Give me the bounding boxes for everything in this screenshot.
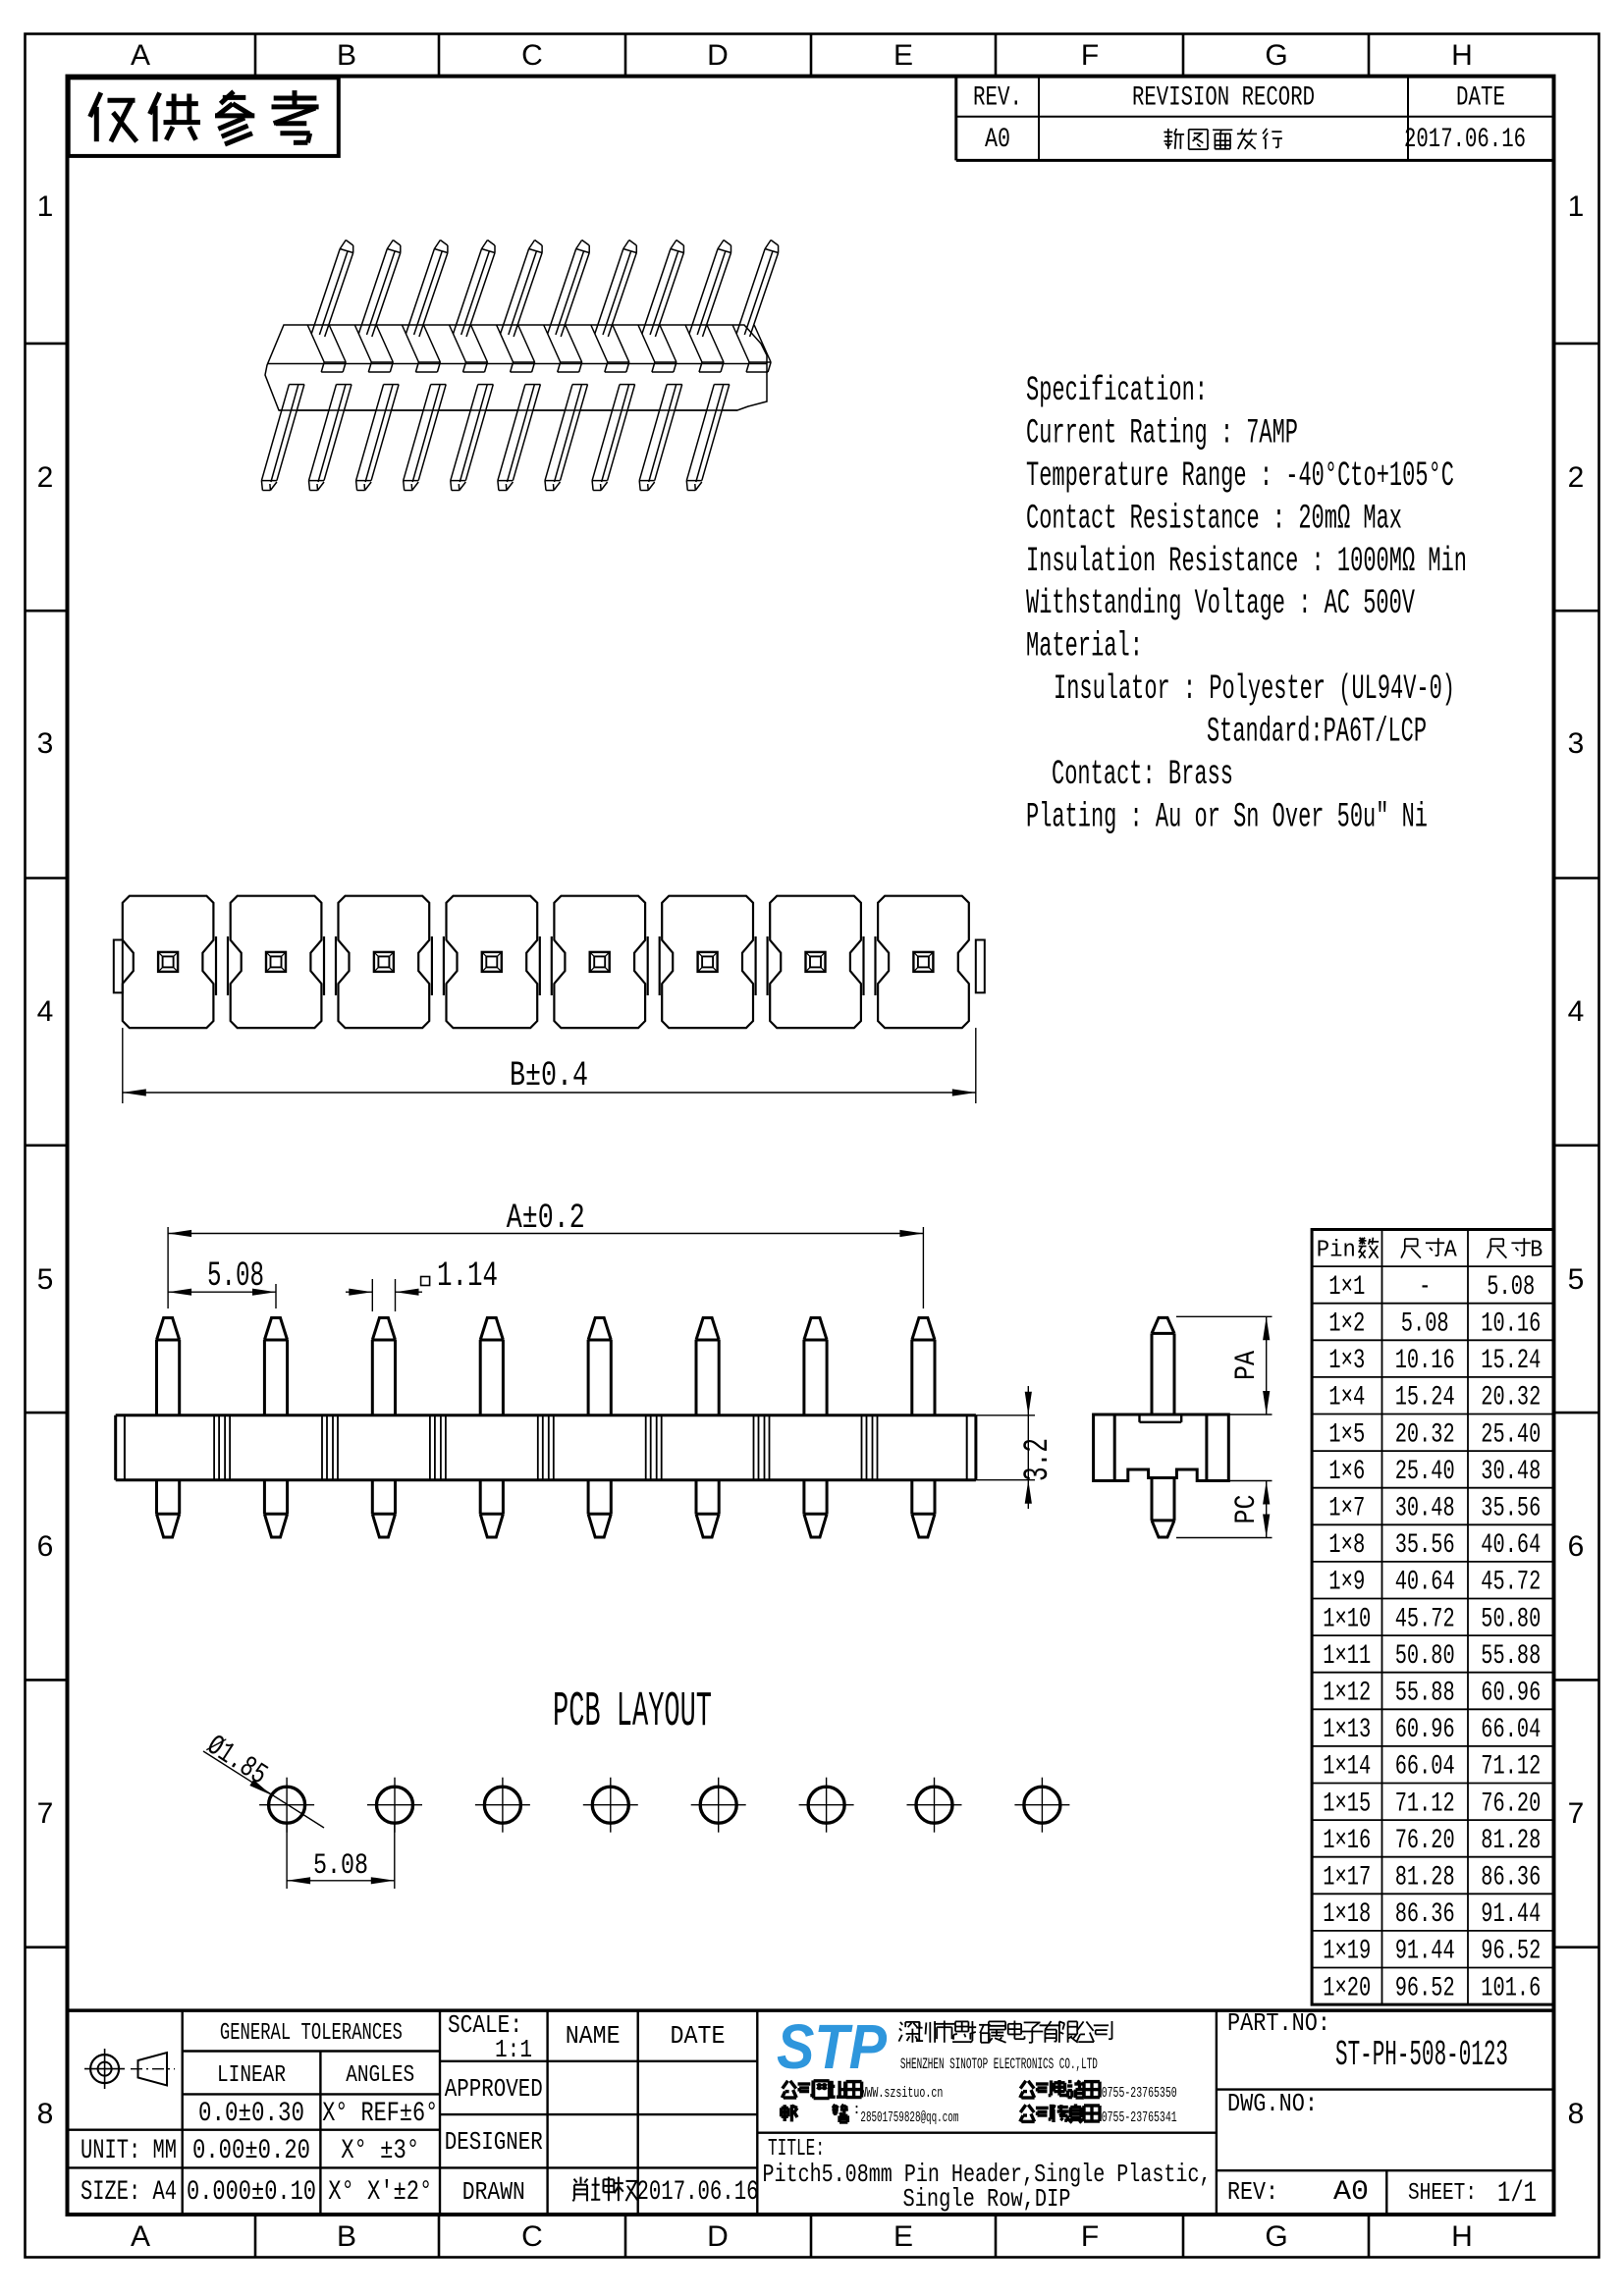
svg-text:10.16: 10.16 (1481, 1309, 1541, 1340)
svg-text:5.08: 5.08 (313, 1849, 368, 1883)
svg-text:PC: PC (1230, 1495, 1264, 1524)
svg-text:1×1: 1×1 (1328, 1272, 1365, 1303)
svg-text:55.88: 55.88 (1395, 1679, 1455, 1709)
svg-text:0.0±0.30: 0.0±0.30 (198, 2099, 304, 2129)
svg-text:1×17: 1×17 (1323, 1863, 1371, 1894)
svg-text:1×12: 1×12 (1323, 1679, 1371, 1709)
svg-text:1×19: 1×19 (1323, 1937, 1371, 1967)
svg-text:F: F (1081, 2220, 1099, 2253)
svg-text:B: B (337, 39, 356, 72)
svg-text:0755-23765350: 0755-23765350 (1102, 2085, 1177, 2102)
svg-text:35.56: 35.56 (1395, 1530, 1455, 1561)
svg-text:A0: A0 (1333, 2177, 1369, 2208)
svg-text:1:1: 1:1 (495, 2035, 532, 2064)
svg-text:50.80: 50.80 (1395, 1641, 1455, 1672)
svg-text:5.08: 5.08 (1487, 1272, 1535, 1303)
svg-text:X° REF±6°: X° REF±6° (322, 2099, 438, 2129)
svg-text:LINEAR: LINEAR (217, 2062, 286, 2089)
svg-text:76.20: 76.20 (1481, 1789, 1541, 1819)
svg-text:Plating : Au or Sn Over 50u" N: Plating : Au or Sn Over 50u" Ni (1026, 798, 1428, 837)
svg-text:4: 4 (1568, 995, 1585, 1028)
svg-text:60.96: 60.96 (1481, 1679, 1541, 1709)
svg-text:1/1: 1/1 (1497, 2177, 1537, 2211)
svg-text:86.36: 86.36 (1481, 1863, 1541, 1894)
svg-text:Current Rating : 7AMP: Current Rating : 7AMP (1026, 413, 1298, 453)
svg-text:30.48: 30.48 (1395, 1494, 1455, 1524)
svg-text:8: 8 (37, 2098, 54, 2130)
svg-text:A: A (131, 39, 150, 72)
svg-text:B: B (1530, 1237, 1543, 1263)
svg-text:ANGLES: ANGLES (346, 2062, 414, 2089)
svg-text:UNIT: MM: UNIT: MM (81, 2136, 177, 2166)
svg-text:0.000±0.10: 0.000±0.10 (187, 2177, 316, 2208)
svg-text:X° ±3°: X° ±3° (341, 2136, 419, 2166)
svg-text:6: 6 (37, 1530, 54, 1563)
svg-text:ST-PH-508-0123: ST-PH-508-0123 (1335, 2035, 1508, 2075)
svg-text:D: D (707, 2220, 729, 2253)
svg-text:1×8: 1×8 (1328, 1530, 1365, 1561)
svg-text:28501759828@qq.com: 28501759828@qq.com (860, 2109, 958, 2126)
svg-text:-: - (1419, 1272, 1431, 1303)
svg-text:45.72: 45.72 (1395, 1604, 1455, 1634)
svg-text:REV:: REV: (1227, 2177, 1278, 2207)
svg-text:1.14: 1.14 (437, 1256, 498, 1296)
svg-text:81.28: 81.28 (1395, 1863, 1455, 1894)
svg-text:REV.: REV. (973, 83, 1022, 114)
svg-text:2017.06.16: 2017.06.16 (637, 2177, 759, 2208)
svg-text:Contact Resistance : 20mΩ Max: Contact Resistance : 20mΩ Max (1026, 499, 1402, 538)
svg-text:1×15: 1×15 (1323, 1789, 1371, 1819)
svg-text:PART.NO:: PART.NO: (1227, 2008, 1330, 2038)
svg-text:1×4: 1×4 (1328, 1383, 1365, 1414)
svg-text:1: 1 (37, 190, 54, 223)
svg-text:86.36: 86.36 (1395, 1899, 1455, 1930)
svg-text:10.16: 10.16 (1395, 1346, 1455, 1376)
svg-text:81.28: 81.28 (1481, 1826, 1541, 1856)
svg-text:Contact: Brass: Contact: Brass (1052, 755, 1233, 794)
svg-text:2: 2 (1568, 461, 1585, 494)
svg-text:C: C (521, 2220, 543, 2253)
svg-text:Insulation Resistance : 1000MΩ: Insulation Resistance : 1000MΩ Min (1026, 542, 1467, 581)
svg-text:Specification:: Specification: (1026, 371, 1208, 410)
svg-text:1×10: 1×10 (1323, 1604, 1371, 1634)
svg-text:B: B (337, 2220, 356, 2253)
svg-text:1×7: 1×7 (1328, 1494, 1365, 1524)
svg-text:2017.06.16: 2017.06.16 (1404, 125, 1526, 155)
svg-text:REVISION RECORD: REVISION RECORD (1132, 83, 1315, 114)
svg-text:101.6: 101.6 (1481, 1973, 1541, 2003)
svg-text:APPROVED: APPROVED (445, 2074, 543, 2104)
svg-text:0755-23765341: 0755-23765341 (1102, 2109, 1177, 2126)
svg-text:Pin: Pin (1317, 1237, 1356, 1263)
svg-text:TITLE:: TITLE: (768, 2136, 825, 2163)
svg-text:15.24: 15.24 (1395, 1383, 1455, 1414)
svg-text:A: A (131, 2220, 150, 2253)
svg-text:Single Row,DIP: Single Row,DIP (903, 2184, 1071, 2214)
svg-text:X° X'±2°: X° X'±2° (328, 2177, 432, 2208)
svg-text:1×18: 1×18 (1323, 1899, 1371, 1930)
svg-text:20.32: 20.32 (1395, 1419, 1455, 1450)
svg-text:5: 5 (37, 1263, 54, 1296)
svg-text:A±0.2: A±0.2 (507, 1199, 585, 1238)
svg-text:40.64: 40.64 (1395, 1568, 1455, 1598)
svg-text:50.80: 50.80 (1481, 1604, 1541, 1634)
svg-text:1×16: 1×16 (1323, 1826, 1371, 1856)
svg-text:1×11: 1×11 (1323, 1641, 1371, 1672)
svg-text:55.88: 55.88 (1481, 1641, 1541, 1672)
svg-text:7: 7 (37, 1797, 54, 1830)
svg-text:1×14: 1×14 (1323, 1752, 1371, 1783)
svg-text:40.64: 40.64 (1481, 1530, 1541, 1561)
svg-text:91.44: 91.44 (1395, 1937, 1455, 1967)
svg-text:H: H (1451, 2220, 1473, 2253)
svg-text:3: 3 (1568, 727, 1585, 760)
svg-text:D: D (707, 39, 729, 72)
svg-text:96.52: 96.52 (1481, 1937, 1541, 1967)
svg-text:G: G (1265, 2220, 1287, 2253)
svg-text:C: C (521, 39, 543, 72)
svg-text:6: 6 (1568, 1530, 1585, 1563)
svg-text:1×20: 1×20 (1323, 1973, 1371, 2003)
svg-text:66.04: 66.04 (1481, 1715, 1541, 1745)
svg-text:B±0.4: B±0.4 (510, 1056, 588, 1095)
svg-text:7: 7 (1568, 1797, 1585, 1830)
svg-text:1×3: 1×3 (1328, 1346, 1365, 1376)
svg-text:Material:: Material: (1026, 627, 1143, 667)
svg-text:STP: STP (777, 2011, 887, 2082)
svg-text:E: E (893, 2220, 913, 2253)
svg-text:4: 4 (37, 995, 54, 1028)
svg-text:G: G (1265, 39, 1287, 72)
svg-text:91.44: 91.44 (1481, 1899, 1541, 1930)
svg-text:DATE: DATE (671, 2021, 726, 2051)
svg-text:E: E (893, 39, 913, 72)
svg-text:NAME: NAME (566, 2021, 621, 2051)
svg-text:Insulator : Polyester (UL94V-0: Insulator : Polyester (UL94V-0) (1054, 669, 1455, 709)
svg-text:5.08: 5.08 (207, 1256, 264, 1296)
svg-text:H: H (1451, 39, 1473, 72)
svg-text:1: 1 (1568, 190, 1585, 223)
svg-text:DESIGNER: DESIGNER (445, 2127, 543, 2157)
svg-text:5.08: 5.08 (1401, 1309, 1449, 1340)
svg-text:Standard:PA6T/LCP: Standard:PA6T/LCP (1207, 713, 1427, 752)
svg-text:Temperature Range : -40°Cto+10: Temperature Range : -40°Cto+105°C (1026, 456, 1454, 496)
svg-text:A: A (1444, 1237, 1458, 1263)
svg-text:45.72: 45.72 (1481, 1568, 1541, 1598)
svg-text:25.40: 25.40 (1395, 1457, 1455, 1487)
svg-text:2: 2 (37, 461, 54, 494)
svg-text:66.04: 66.04 (1395, 1752, 1455, 1783)
svg-text:76.20: 76.20 (1395, 1826, 1455, 1856)
svg-text:DRAWN: DRAWN (462, 2177, 525, 2207)
svg-text:SIZE: A4: SIZE: A4 (81, 2177, 177, 2208)
svg-text:1×6: 1×6 (1328, 1457, 1365, 1487)
svg-text:WWW.szsituo.cn: WWW.szsituo.cn (860, 2085, 943, 2102)
svg-text:Withstanding Voltage : AC 500V: Withstanding Voltage : AC 500V (1026, 584, 1415, 623)
svg-text:71.12: 71.12 (1395, 1789, 1455, 1819)
svg-text:3: 3 (37, 727, 54, 760)
svg-text:DATE: DATE (1456, 83, 1505, 114)
svg-text:1×5: 1×5 (1328, 1419, 1365, 1450)
svg-text:SHEET:: SHEET: (1408, 2180, 1477, 2207)
svg-text:SHENZHEN SINOTOP ELECTRONICS C: SHENZHEN SINOTOP ELECTRONICS CO.,LTD (900, 2056, 1098, 2073)
svg-text:5: 5 (1568, 1263, 1585, 1296)
svg-text:8: 8 (1568, 2098, 1585, 2130)
svg-text:1×9: 1×9 (1328, 1568, 1365, 1598)
svg-text:1×13: 1×13 (1323, 1715, 1371, 1745)
svg-text:60.96: 60.96 (1395, 1715, 1455, 1745)
svg-text:F: F (1081, 39, 1099, 72)
svg-text:71.12: 71.12 (1481, 1752, 1541, 1783)
svg-text:25.40: 25.40 (1481, 1419, 1541, 1450)
svg-text:DWG.NO:: DWG.NO: (1227, 2089, 1318, 2118)
svg-text:1×2: 1×2 (1328, 1309, 1365, 1340)
svg-text:0.00±0.20: 0.00±0.20 (192, 2136, 310, 2166)
svg-text:96.52: 96.52 (1395, 1973, 1455, 2003)
svg-text:15.24: 15.24 (1481, 1346, 1541, 1376)
svg-text:PCB LAYOUT: PCB LAYOUT (553, 1684, 712, 1740)
svg-text:PA: PA (1230, 1351, 1264, 1380)
svg-text:30.48: 30.48 (1481, 1457, 1541, 1487)
svg-text:35.56: 35.56 (1481, 1494, 1541, 1524)
svg-text:GENERAL TOLERANCES: GENERAL TOLERANCES (220, 2020, 403, 2047)
svg-text:A0: A0 (985, 125, 1010, 155)
svg-text:20.32: 20.32 (1481, 1383, 1541, 1414)
svg-text:3.2: 3.2 (1018, 1438, 1057, 1481)
